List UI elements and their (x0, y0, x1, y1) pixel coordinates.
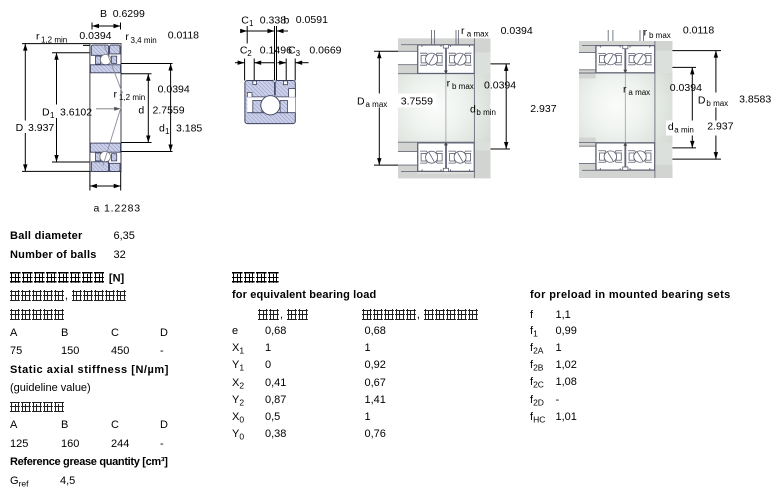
svg-text:2.937: 2.937 (707, 121, 733, 133)
svg-text:0.0118: 0.0118 (168, 30, 199, 42)
svg-text:D: D (357, 96, 365, 108)
svg-text:r: r (114, 89, 118, 101)
svg-text:3.6102: 3.6102 (60, 107, 92, 119)
svg-text:d: d (668, 121, 674, 133)
svg-text:b max: b max (649, 31, 671, 40)
svg-text:r: r (447, 78, 451, 90)
svg-text:0.0394: 0.0394 (670, 82, 702, 94)
svg-text:r: r (125, 31, 129, 43)
svg-text:3.185: 3.185 (176, 123, 202, 135)
svg-text:b min: b min (476, 108, 496, 117)
svg-text:3.8583: 3.8583 (739, 94, 771, 106)
svg-text:0.0118: 0.0118 (683, 25, 714, 37)
svg-text:B: B (100, 8, 107, 20)
svg-text:1.2283: 1.2283 (104, 203, 141, 215)
svg-text:a: a (94, 203, 100, 215)
svg-text:2.937: 2.937 (530, 103, 556, 115)
svg-text:0.0669: 0.0669 (309, 45, 341, 57)
svg-text:3.7559: 3.7559 (401, 96, 433, 108)
svg-text:a max: a max (467, 30, 489, 39)
svg-text:2: 2 (247, 49, 252, 58)
svg-text:d: d (138, 105, 144, 117)
svg-text:0.338: 0.338 (260, 15, 286, 27)
svg-text:1,2 min: 1,2 min (119, 93, 145, 102)
svg-text:1: 1 (165, 127, 170, 136)
svg-text:d: d (470, 104, 476, 116)
svg-text:3,4 min: 3,4 min (131, 36, 157, 45)
svg-text:0.0394: 0.0394 (79, 30, 111, 42)
svg-text:r: r (36, 31, 40, 43)
svg-text:a max: a max (366, 100, 388, 109)
svg-text:3.937: 3.937 (28, 122, 54, 134)
svg-text:1: 1 (249, 19, 254, 28)
svg-text:r: r (623, 84, 627, 96)
svg-text:1: 1 (50, 111, 55, 120)
svg-text:r: r (644, 27, 648, 39)
svg-text:r: r (461, 25, 465, 37)
svg-text:0.0394: 0.0394 (158, 84, 190, 96)
svg-text:0.6299: 0.6299 (113, 8, 145, 20)
svg-text:0.0394: 0.0394 (501, 25, 533, 37)
svg-text:2.7559: 2.7559 (153, 105, 185, 117)
svg-text:0.0394: 0.0394 (484, 80, 516, 92)
svg-text:b max: b max (706, 99, 728, 108)
svg-text:D: D (42, 107, 50, 119)
svg-text:a max: a max (628, 88, 650, 97)
svg-text:a min: a min (674, 126, 694, 135)
svg-text:b: b (284, 15, 290, 27)
svg-text:b max: b max (452, 82, 474, 91)
svg-text:D: D (16, 122, 24, 134)
svg-text:3: 3 (296, 49, 301, 58)
svg-text:0.0591: 0.0591 (296, 14, 328, 26)
svg-text:D: D (698, 95, 706, 107)
